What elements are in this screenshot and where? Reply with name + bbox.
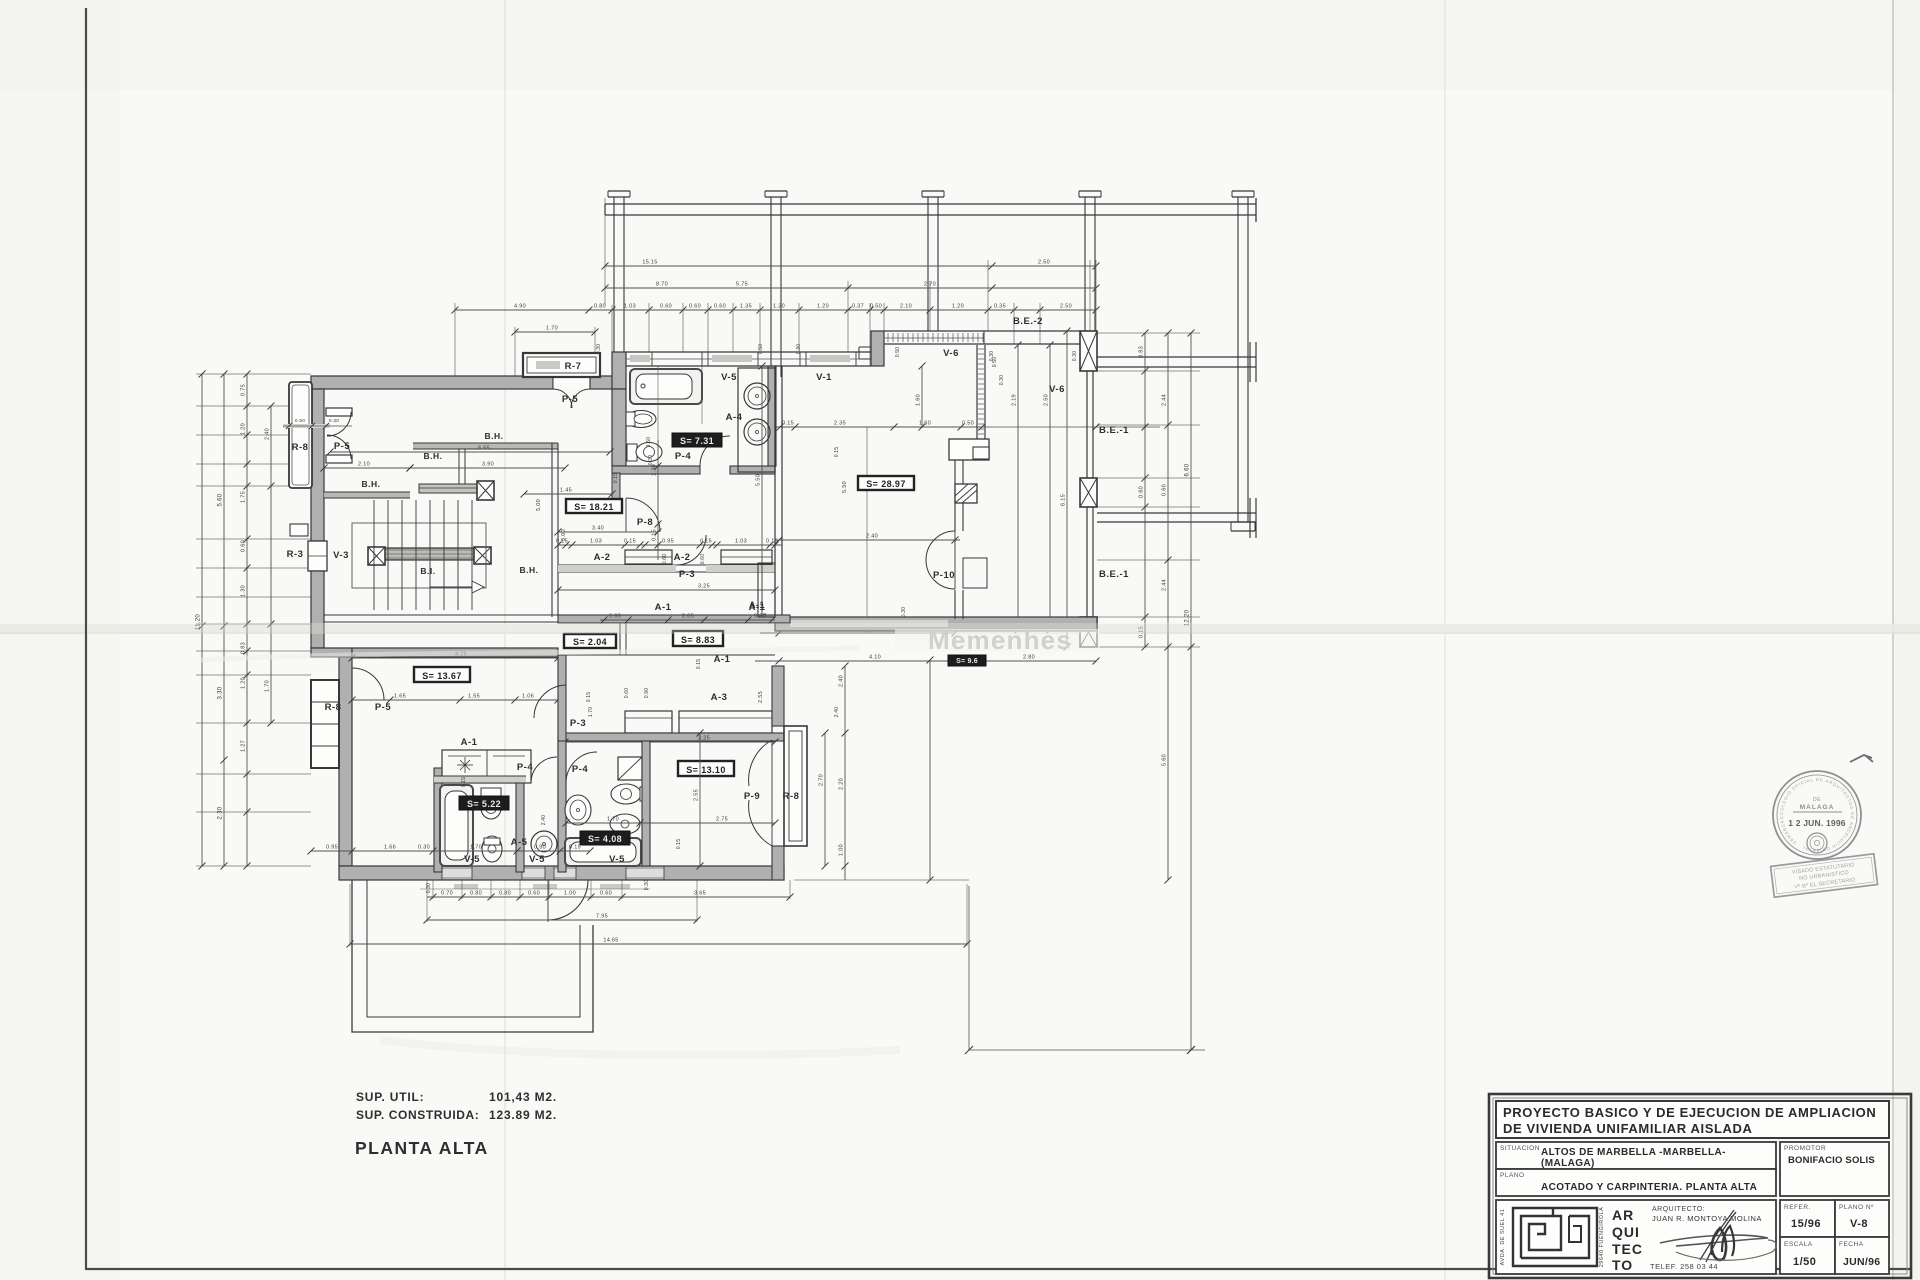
svg-text:0.50: 0.50 <box>758 344 764 355</box>
svg-text:0.30: 0.30 <box>426 883 432 894</box>
svg-text:0.83: 0.83 <box>241 642 247 654</box>
svg-text:1.45: 1.45 <box>560 488 572 494</box>
svg-text:0.95: 0.95 <box>662 539 674 545</box>
svg-text:2.44: 2.44 <box>1162 394 1168 406</box>
svg-text:0.95: 0.95 <box>326 845 338 851</box>
svg-text:V-8: V-8 <box>1850 1218 1868 1230</box>
svg-text:0.60: 0.60 <box>600 891 612 897</box>
svg-text:2.70: 2.70 <box>819 774 825 786</box>
svg-text:DE VIVIENDA UNIFAMILIAR AIS: DE VIVIENDA UNIFAMILIAR AISLADA <box>1503 1121 1752 1136</box>
svg-text:0.35: 0.35 <box>994 304 1006 310</box>
svg-text:A-4: A-4 <box>726 412 743 423</box>
svg-text:0.70: 0.70 <box>441 891 453 897</box>
svg-text:V-3: V-3 <box>333 550 349 561</box>
svg-text:1.03: 1.03 <box>590 539 602 545</box>
svg-text:A-1: A-1 <box>749 600 765 610</box>
svg-text:P-8: P-8 <box>637 517 653 528</box>
svg-text:B.H.: B.H. <box>520 565 539 575</box>
svg-text:0.15: 0.15 <box>834 447 840 458</box>
svg-text:S= 7.31: S= 7.31 <box>680 436 714 446</box>
svg-text:2.05: 2.05 <box>682 614 694 620</box>
svg-text:R-8: R-8 <box>783 791 800 802</box>
svg-text:0.15: 0.15 <box>782 421 794 427</box>
svg-text:1/50: 1/50 <box>1793 1256 1816 1268</box>
svg-text:5.60: 5.60 <box>218 493 224 506</box>
svg-text:2.20: 2.20 <box>839 778 845 790</box>
svg-text:1.27: 1.27 <box>241 740 247 752</box>
svg-text:0.15: 0.15 <box>624 539 636 545</box>
svg-text:MALAGA: MALAGA <box>1800 804 1835 811</box>
svg-text:AVDA. DE SUEL 41: AVDA. DE SUEL 41 <box>1500 1209 1506 1266</box>
svg-text:1.06: 1.06 <box>522 694 534 700</box>
svg-text:PROYECTO BASICO Y DE EJECU: PROYECTO BASICO Y DE EJECUCION DE AMPLIA… <box>1503 1105 1876 1120</box>
svg-text:2.55: 2.55 <box>694 789 700 801</box>
svg-text:V-6: V-6 <box>1049 384 1065 395</box>
svg-text:SUP. UTIL:: SUP. UTIL: <box>356 1090 424 1104</box>
svg-text:(MALAGA): (MALAGA) <box>1541 1158 1595 1169</box>
svg-text:PLANO Nº: PLANO Nº <box>1839 1204 1874 1211</box>
svg-text:PLANO: PLANO <box>1500 1172 1525 1179</box>
svg-text:0.60: 0.60 <box>1162 484 1168 496</box>
svg-text:0.83: 0.83 <box>1139 346 1145 358</box>
svg-text:A-5: A-5 <box>511 837 528 848</box>
svg-text:DE: DE <box>1813 797 1821 803</box>
svg-text:SITUACION: SITUACION <box>1500 1145 1540 1152</box>
svg-text:0.60: 0.60 <box>624 688 630 699</box>
svg-text:2.40: 2.40 <box>541 815 547 826</box>
svg-text:0.80: 0.80 <box>499 891 511 897</box>
svg-text:A-1: A-1 <box>714 654 731 665</box>
svg-text:1.50: 1.50 <box>646 437 652 448</box>
svg-text:123.89 M2.: 123.89 M2. <box>489 1108 557 1122</box>
svg-text:2.50: 2.50 <box>1060 304 1072 310</box>
svg-text:2.30: 2.30 <box>218 806 224 819</box>
svg-text:6.55: 6.55 <box>478 446 490 452</box>
svg-text:B.I.: B.I. <box>420 566 435 576</box>
svg-text:0.60: 0.60 <box>714 304 726 310</box>
svg-text:14.65: 14.65 <box>603 938 618 944</box>
svg-text:1.30: 1.30 <box>241 585 247 597</box>
svg-text:6.15: 6.15 <box>1061 494 1067 506</box>
svg-text:0.80: 0.80 <box>470 891 482 897</box>
svg-text:0.15: 0.15 <box>696 659 702 670</box>
svg-text:5.50: 5.50 <box>756 474 762 486</box>
svg-text:0.15: 0.15 <box>586 692 592 703</box>
svg-text:7.95: 7.95 <box>596 914 608 920</box>
svg-text:BONIFACIO SOLIS: BONIFACIO SOLIS <box>1788 1155 1875 1166</box>
svg-text:8.70: 8.70 <box>656 282 668 288</box>
svg-text:15.15: 15.15 <box>642 260 657 266</box>
svg-text:QUI: QUI <box>1612 1224 1640 1240</box>
svg-text:2.40: 2.40 <box>834 707 840 718</box>
svg-text:R-3: R-3 <box>287 549 304 560</box>
svg-text:0.15: 0.15 <box>766 539 778 545</box>
svg-text:JUAN R. MONTOYA MOLINA: JUAN R. MONTOYA MOLINA <box>1652 1214 1762 1223</box>
svg-text:V-5: V-5 <box>529 854 545 865</box>
svg-text:0.30: 0.30 <box>1072 351 1078 362</box>
svg-text:A-2: A-2 <box>594 552 611 563</box>
svg-text:1.20: 1.20 <box>773 304 785 310</box>
svg-text:1.03: 1.03 <box>624 304 636 310</box>
svg-text:2.75: 2.75 <box>716 817 728 823</box>
svg-text:1.20: 1.20 <box>241 423 247 435</box>
svg-text:0.30: 0.30 <box>901 607 907 618</box>
svg-text:R-7: R-7 <box>565 361 582 372</box>
svg-text:P-4: P-4 <box>517 762 534 773</box>
svg-text:4.10: 4.10 <box>869 655 881 661</box>
svg-text:29640 FUENGIROLA: 29640 FUENGIROLA <box>1599 1207 1605 1268</box>
svg-text:0.75: 0.75 <box>241 384 247 396</box>
svg-text:P-3: P-3 <box>679 569 695 580</box>
svg-text:0.50: 0.50 <box>895 347 901 358</box>
svg-text:0.30: 0.30 <box>648 455 654 466</box>
svg-text:V-5: V-5 <box>609 854 625 865</box>
svg-text:0.15: 0.15 <box>676 839 682 850</box>
svg-text:3.30: 3.30 <box>218 686 224 699</box>
svg-text:B.E.-1: B.E.-1 <box>1099 425 1129 436</box>
svg-text:A-1: A-1 <box>461 737 478 748</box>
svg-text:S= 13.67: S= 13.67 <box>422 671 461 681</box>
svg-text:2.80: 2.80 <box>1023 655 1035 661</box>
svg-text:S= 13.10: S= 13.10 <box>686 765 725 775</box>
svg-text:0.60: 0.60 <box>662 554 668 565</box>
svg-text:3.65: 3.65 <box>694 891 706 897</box>
svg-text:TO: TO <box>1612 1257 1633 1273</box>
svg-text:B.E.-1: B.E.-1 <box>1099 569 1129 580</box>
svg-text:0.15: 0.15 <box>461 777 467 788</box>
svg-text:1.70: 1.70 <box>470 845 482 851</box>
svg-text:0.30: 0.30 <box>644 880 650 891</box>
svg-text:PROMOTOR: PROMOTOR <box>1784 1145 1826 1152</box>
svg-text:0.15: 0.15 <box>569 845 581 851</box>
svg-text:1 2 JUN. 1996: 1 2 JUN. 1996 <box>1788 818 1845 828</box>
svg-text:0.90: 0.90 <box>644 688 650 699</box>
svg-text:1.60: 1.60 <box>916 394 922 406</box>
svg-text:A-3: A-3 <box>711 692 728 703</box>
svg-text:2.10: 2.10 <box>358 462 370 468</box>
svg-text:2.10: 2.10 <box>900 304 912 310</box>
svg-text:B.H.: B.H. <box>424 451 443 461</box>
svg-text:0.30: 0.30 <box>329 418 339 424</box>
svg-text:0.60: 0.60 <box>241 540 247 552</box>
svg-text:ESCALA: ESCALA <box>1784 1241 1813 1248</box>
svg-text:2.55: 2.55 <box>758 691 764 703</box>
svg-text:ACOTADO Y CARPINTERIA. PLAN: ACOTADO Y CARPINTERIA. PLANTA ALTA <box>1541 1182 1757 1193</box>
svg-text:3.90: 3.90 <box>482 462 494 468</box>
svg-text:V-5: V-5 <box>464 854 480 865</box>
svg-text:5.75: 5.75 <box>736 282 748 288</box>
svg-text:1.00: 1.00 <box>564 891 576 897</box>
svg-text:PLANTA ALTA: PLANTA ALTA <box>355 1138 489 1158</box>
svg-text:SUP. CONSTRUIDA:: SUP. CONSTRUIDA: <box>356 1108 479 1122</box>
svg-text:3.25: 3.25 <box>698 584 710 590</box>
svg-text:R-8: R-8 <box>292 442 309 453</box>
svg-text:P-5: P-5 <box>334 441 351 452</box>
svg-text:0.80: 0.80 <box>594 304 606 310</box>
svg-text:1.30: 1.30 <box>652 464 658 476</box>
svg-text:1.00: 1.00 <box>839 844 845 856</box>
svg-text:5.00: 5.00 <box>536 499 542 511</box>
svg-text:P-10: P-10 <box>933 570 955 581</box>
svg-text:0.60: 0.60 <box>689 304 701 310</box>
svg-text:0.15: 0.15 <box>613 473 619 484</box>
svg-text:1.20: 1.20 <box>817 304 829 310</box>
svg-text:0.60: 0.60 <box>609 614 621 620</box>
svg-text:AR: AR <box>1612 1207 1634 1223</box>
svg-text:S= 5.22: S= 5.22 <box>467 799 501 809</box>
svg-text:2.50: 2.50 <box>1044 394 1050 406</box>
svg-text:1.35: 1.35 <box>740 304 752 310</box>
svg-text:V-5: V-5 <box>721 372 737 383</box>
svg-text:A-1: A-1 <box>655 602 672 613</box>
svg-text:0.90: 0.90 <box>534 845 546 851</box>
svg-text:S= 8.83: S= 8.83 <box>681 635 715 645</box>
svg-text:0.50: 0.50 <box>962 421 974 427</box>
svg-text:5.50: 5.50 <box>842 481 848 493</box>
svg-text:S= 28.97: S= 28.97 <box>866 479 905 489</box>
svg-text:0.30: 0.30 <box>999 375 1005 386</box>
svg-text:P-3: P-3 <box>570 718 586 729</box>
svg-text:0.60: 0.60 <box>1139 486 1145 498</box>
svg-text:2.40: 2.40 <box>839 675 845 687</box>
svg-text:0.50: 0.50 <box>870 304 882 310</box>
svg-text:0.50: 0.50 <box>992 357 998 368</box>
svg-text:1.65: 1.65 <box>394 694 406 700</box>
svg-text:1.70: 1.70 <box>588 707 594 718</box>
svg-text:A-2: A-2 <box>674 552 691 563</box>
svg-text:1.75: 1.75 <box>241 491 247 503</box>
svg-text:S= 18.21: S= 18.21 <box>574 502 613 512</box>
svg-text:0.30: 0.30 <box>418 845 430 851</box>
svg-text:1.70: 1.70 <box>546 326 558 332</box>
svg-text:V-6: V-6 <box>943 348 959 359</box>
svg-text:15/96: 15/96 <box>1791 1218 1821 1230</box>
svg-text:5.60: 5.60 <box>1162 754 1168 766</box>
svg-text:ARQUITECTO:: ARQUITECTO: <box>1652 1206 1705 1213</box>
svg-text:2.35: 2.35 <box>834 421 846 427</box>
svg-text:S= 4.08: S= 4.08 <box>588 834 622 844</box>
svg-text:2.50: 2.50 <box>1038 260 1050 266</box>
svg-text:S= 9.6: S= 9.6 <box>956 658 978 665</box>
svg-text:3.40: 3.40 <box>592 526 604 532</box>
svg-text:0.60: 0.60 <box>660 304 672 310</box>
svg-text:P-5: P-5 <box>562 394 579 405</box>
svg-text:6.60: 6.60 <box>1185 463 1191 476</box>
svg-text:1.55: 1.55 <box>468 694 480 700</box>
svg-text:1.20: 1.20 <box>952 304 964 310</box>
svg-text:2.40: 2.40 <box>866 534 878 540</box>
svg-text:S= 2.04: S= 2.04 <box>573 637 607 647</box>
svg-text:V-1: V-1 <box>816 372 832 383</box>
svg-text:JUN/96: JUN/96 <box>1843 1256 1880 1268</box>
svg-text:1.70: 1.70 <box>265 680 271 692</box>
svg-text:TELEF. 258 03 44: TELEF. 258 03 44 <box>1650 1262 1718 1271</box>
svg-text:1.66: 1.66 <box>384 845 396 851</box>
svg-text:P-4: P-4 <box>572 764 589 775</box>
svg-text:B.H.: B.H. <box>485 431 504 441</box>
svg-text:0.37: 0.37 <box>852 304 864 310</box>
svg-text:2.44: 2.44 <box>1162 579 1168 591</box>
svg-text:1.20: 1.20 <box>241 677 247 689</box>
svg-text:REFER.: REFER. <box>1784 1204 1811 1211</box>
svg-text:1.70: 1.70 <box>607 817 619 823</box>
svg-text:0.60: 0.60 <box>528 891 540 897</box>
svg-text:Memenhes: Memenhes <box>928 625 1072 655</box>
svg-text:FECHA: FECHA <box>1839 1241 1864 1248</box>
svg-text:0.15: 0.15 <box>556 539 568 545</box>
svg-text:2.19: 2.19 <box>1012 394 1018 406</box>
svg-text:4.90: 4.90 <box>514 304 526 310</box>
svg-text:0.60: 0.60 <box>700 554 706 565</box>
svg-text:P-4: P-4 <box>675 451 692 462</box>
svg-text:101,43 M2.: 101,43 M2. <box>489 1090 557 1104</box>
svg-text:R-8: R-8 <box>325 702 342 713</box>
svg-text:ALTOS DE MARBELLA -MARBELLA: ALTOS DE MARBELLA -MARBELLA- <box>1541 1147 1726 1158</box>
svg-text:2.40: 2.40 <box>265 428 271 440</box>
svg-text:0.50: 0.50 <box>295 418 305 424</box>
svg-text:B.H.: B.H. <box>362 479 381 489</box>
svg-text:1.03: 1.03 <box>735 539 747 545</box>
svg-text:B.E.-2: B.E.-2 <box>1013 316 1043 327</box>
svg-text:P-9: P-9 <box>744 791 760 802</box>
svg-text:TEC: TEC <box>1612 1241 1643 1257</box>
svg-text:P-5: P-5 <box>375 702 392 713</box>
